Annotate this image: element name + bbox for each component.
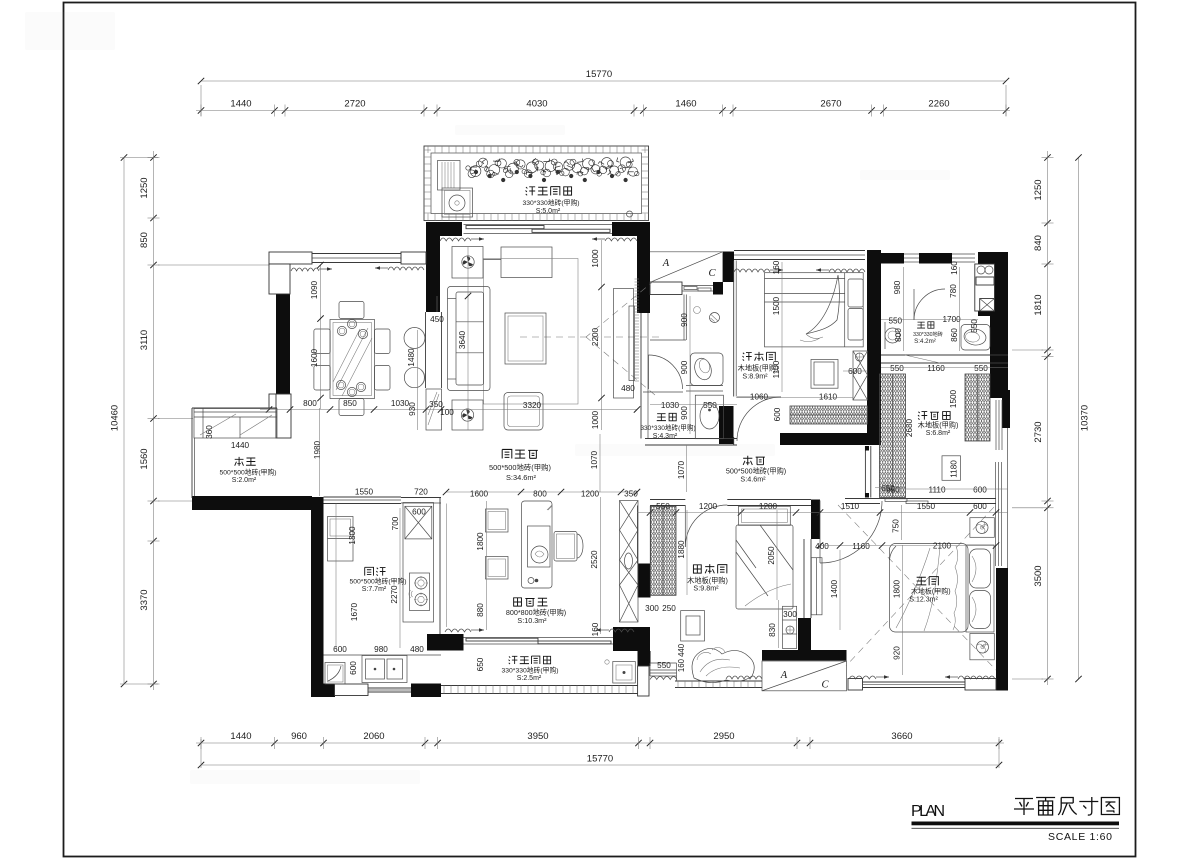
svg-text:650: 650 — [476, 657, 485, 671]
svg-text:830: 830 — [768, 623, 777, 637]
svg-text:800: 800 — [303, 399, 317, 408]
svg-text:500*500地砖(甲购): 500*500地砖(甲购) — [349, 577, 406, 586]
svg-text:2950: 2950 — [713, 731, 734, 742]
svg-text:1180: 1180 — [949, 460, 958, 478]
svg-text:S:8.9m²: S:8.9m² — [742, 372, 768, 381]
svg-text:600: 600 — [349, 661, 358, 675]
svg-text:2200: 2200 — [591, 327, 600, 346]
svg-text:1550: 1550 — [355, 488, 374, 497]
svg-text:550: 550 — [970, 319, 979, 333]
svg-text:1070: 1070 — [677, 460, 686, 479]
svg-text:S:7.7m²: S:7.7m² — [362, 586, 387, 593]
svg-text:300: 300 — [783, 610, 797, 619]
svg-text:600: 600 — [973, 486, 987, 495]
svg-text:600: 600 — [773, 407, 782, 421]
svg-text:900: 900 — [680, 313, 689, 327]
svg-text:650: 650 — [881, 484, 895, 493]
svg-text:920: 920 — [893, 646, 902, 660]
svg-text:840: 840 — [1033, 235, 1044, 251]
svg-text:4030: 4030 — [526, 99, 547, 110]
svg-text:15770: 15770 — [586, 69, 612, 80]
svg-text:720: 720 — [414, 488, 428, 497]
svg-text:1510: 1510 — [841, 502, 860, 511]
svg-text:330*330地砖(甲购): 330*330地砖(甲购) — [640, 423, 695, 432]
svg-text:1030: 1030 — [391, 399, 410, 408]
svg-text:600: 600 — [848, 367, 862, 376]
svg-text:550: 550 — [888, 317, 902, 326]
svg-text:550: 550 — [974, 364, 988, 373]
svg-text:980: 980 — [893, 280, 902, 294]
svg-text:100: 100 — [440, 408, 454, 417]
svg-text:1500: 1500 — [772, 296, 781, 315]
svg-text:S:4.3m²: S:4.3m² — [653, 433, 678, 440]
svg-text:860: 860 — [950, 328, 959, 342]
svg-text:160: 160 — [950, 261, 959, 275]
svg-text:160: 160 — [772, 260, 781, 274]
svg-text:2100: 2100 — [933, 542, 952, 551]
svg-text:1800: 1800 — [476, 532, 485, 551]
svg-text:3320: 3320 — [523, 401, 542, 410]
svg-text:1030: 1030 — [661, 401, 680, 410]
svg-text:1000: 1000 — [591, 410, 600, 429]
svg-text:2050: 2050 — [767, 546, 776, 565]
svg-text:S:2.0m²: S:2.0m² — [232, 477, 257, 484]
svg-text:1090: 1090 — [310, 280, 319, 299]
svg-text:1670: 1670 — [350, 602, 359, 621]
svg-text:2720: 2720 — [344, 99, 365, 110]
svg-text:1440: 1440 — [230, 99, 251, 110]
svg-text:600: 600 — [412, 508, 426, 517]
svg-text:800: 800 — [533, 490, 547, 499]
svg-text:S:4.6m²: S:4.6m² — [740, 475, 766, 484]
svg-text:1460: 1460 — [675, 99, 696, 110]
svg-text:1000: 1000 — [591, 249, 600, 268]
svg-text:250: 250 — [662, 604, 676, 613]
svg-text:S:2.5m²: S:2.5m² — [517, 675, 542, 682]
svg-text:350: 350 — [624, 490, 638, 499]
svg-text:330*330地砖: 330*330地砖 — [913, 330, 943, 338]
svg-text:2060: 2060 — [363, 731, 384, 742]
svg-text:1440: 1440 — [231, 441, 250, 450]
svg-text:2730: 2730 — [1033, 421, 1044, 442]
svg-text:750: 750 — [892, 519, 901, 533]
svg-text:480: 480 — [621, 384, 635, 393]
svg-text:1550: 1550 — [917, 502, 936, 511]
svg-text:S:34.6m²: S:34.6m² — [506, 473, 537, 482]
svg-text:3370: 3370 — [139, 589, 150, 610]
svg-text:850: 850 — [343, 399, 357, 408]
svg-text:1200: 1200 — [699, 502, 718, 511]
svg-text:C: C — [821, 680, 829, 691]
svg-text:550: 550 — [890, 364, 904, 373]
svg-text:2270: 2270 — [390, 585, 399, 604]
svg-text:780: 780 — [949, 284, 958, 298]
svg-text:600: 600 — [333, 645, 347, 654]
svg-text:480: 480 — [410, 645, 424, 654]
svg-text:1250: 1250 — [1033, 179, 1044, 200]
svg-text:1110: 1110 — [929, 486, 946, 495]
svg-text:10370: 10370 — [1080, 405, 1091, 431]
svg-text:1560: 1560 — [139, 448, 150, 469]
svg-text:900: 900 — [680, 406, 689, 420]
svg-text:SCALE 1:60: SCALE 1:60 — [1048, 831, 1112, 843]
svg-text:500*500地砖(甲购): 500*500地砖(甲购) — [219, 468, 276, 477]
svg-text:1160: 1160 — [852, 542, 870, 551]
svg-text:15770: 15770 — [587, 754, 613, 765]
svg-text:1880: 1880 — [677, 540, 686, 559]
svg-text:980: 980 — [374, 645, 388, 654]
svg-text:160: 160 — [591, 622, 600, 636]
svg-text:880: 880 — [476, 603, 485, 617]
svg-text:木地板(甲购): 木地板(甲购) — [911, 587, 951, 596]
svg-text:1600: 1600 — [310, 348, 319, 367]
svg-text:S:9.8m²: S:9.8m² — [693, 584, 719, 593]
svg-text:800: 800 — [894, 328, 903, 342]
svg-text:2520: 2520 — [590, 550, 599, 569]
svg-text:3950: 3950 — [527, 731, 548, 742]
svg-text:S:6.8m²: S:6.8m² — [926, 430, 951, 437]
svg-text:3660: 3660 — [891, 731, 912, 742]
svg-text:3640: 3640 — [458, 330, 467, 349]
svg-text:1500: 1500 — [949, 389, 958, 408]
svg-text:1200: 1200 — [581, 490, 600, 499]
svg-text:1400: 1400 — [830, 579, 839, 598]
svg-text:S:5.0m²: S:5.0m² — [536, 208, 561, 215]
svg-text:960: 960 — [291, 731, 307, 742]
svg-text:S:10.3m²: S:10.3m² — [517, 616, 547, 625]
svg-text:930: 930 — [408, 402, 417, 416]
svg-text:450: 450 — [430, 315, 444, 324]
svg-text:360: 360 — [205, 425, 214, 439]
svg-text:PLAN: PLAN — [911, 803, 945, 820]
svg-text:1060: 1060 — [750, 393, 769, 402]
svg-text:1980: 1980 — [313, 440, 322, 459]
svg-text:1300: 1300 — [348, 526, 357, 545]
svg-text:300: 300 — [645, 604, 659, 613]
svg-text:2670: 2670 — [820, 99, 841, 110]
svg-text:1250: 1250 — [139, 177, 150, 198]
svg-text:1800: 1800 — [893, 579, 902, 598]
svg-text:1160: 1160 — [927, 364, 945, 373]
svg-text:1440: 1440 — [230, 731, 251, 742]
svg-text:850: 850 — [139, 232, 150, 248]
svg-text:550: 550 — [657, 661, 671, 670]
svg-text:S:4.2m²: S:4.2m² — [914, 338, 936, 345]
svg-text:A: A — [780, 670, 788, 681]
svg-text:900: 900 — [680, 360, 689, 374]
svg-text:1810: 1810 — [1033, 294, 1044, 315]
svg-text:550: 550 — [703, 401, 717, 410]
svg-text:C: C — [708, 268, 716, 279]
svg-text:1480: 1480 — [407, 348, 416, 367]
svg-text:2260: 2260 — [928, 99, 949, 110]
svg-text:500*500地砖(甲购): 500*500地砖(甲购) — [489, 463, 551, 472]
svg-text:330*330地砖(甲购): 330*330地砖(甲购) — [522, 198, 579, 207]
svg-text:木地板(甲购): 木地板(甲购) — [918, 421, 959, 430]
svg-text:3110: 3110 — [139, 330, 150, 350]
svg-text:1070: 1070 — [590, 450, 599, 469]
svg-text:700: 700 — [391, 516, 400, 530]
svg-text:160 440: 160 440 — [677, 643, 686, 672]
svg-text:1610: 1610 — [819, 393, 838, 402]
svg-text:A: A — [662, 258, 670, 269]
svg-text:330*330地砖(甲购): 330*330地砖(甲购) — [501, 666, 558, 675]
svg-text:600: 600 — [973, 502, 987, 511]
svg-text:2680: 2680 — [905, 418, 914, 437]
svg-text:10460: 10460 — [110, 405, 121, 431]
svg-text:3500: 3500 — [1033, 565, 1044, 586]
svg-text:S:12.3m²: S:12.3m² — [909, 597, 938, 604]
svg-text:1600: 1600 — [470, 490, 489, 499]
